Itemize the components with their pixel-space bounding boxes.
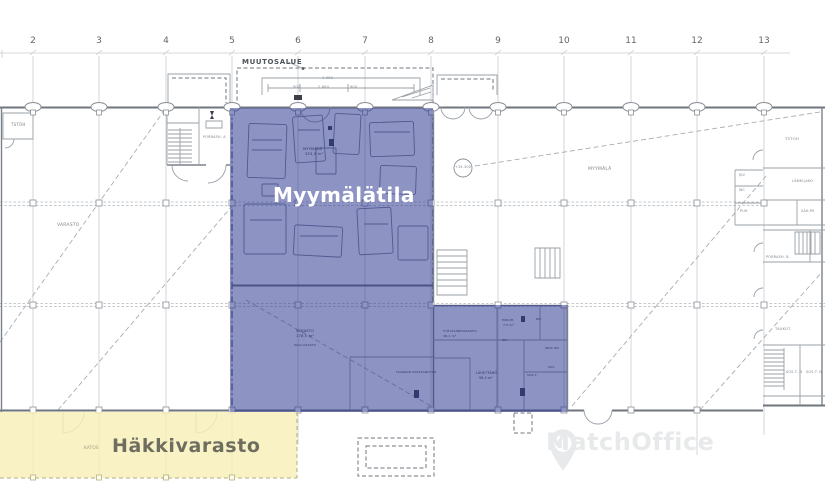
storage-border-linework [0, 0, 825, 500]
map-pin-building-icon [546, 428, 580, 472]
watermark: MatchOffice [546, 428, 714, 456]
floor-plan-screenshot: VARASTOTSTOHPORRASH. AMYYMÄLÄ+34.3004 00… [0, 0, 825, 500]
storage-area-label: Häkkivarasto [112, 435, 261, 457]
change-area-label: MUUTOSALUE [242, 58, 302, 66]
shop-area-label: Myymälätila [273, 183, 415, 207]
